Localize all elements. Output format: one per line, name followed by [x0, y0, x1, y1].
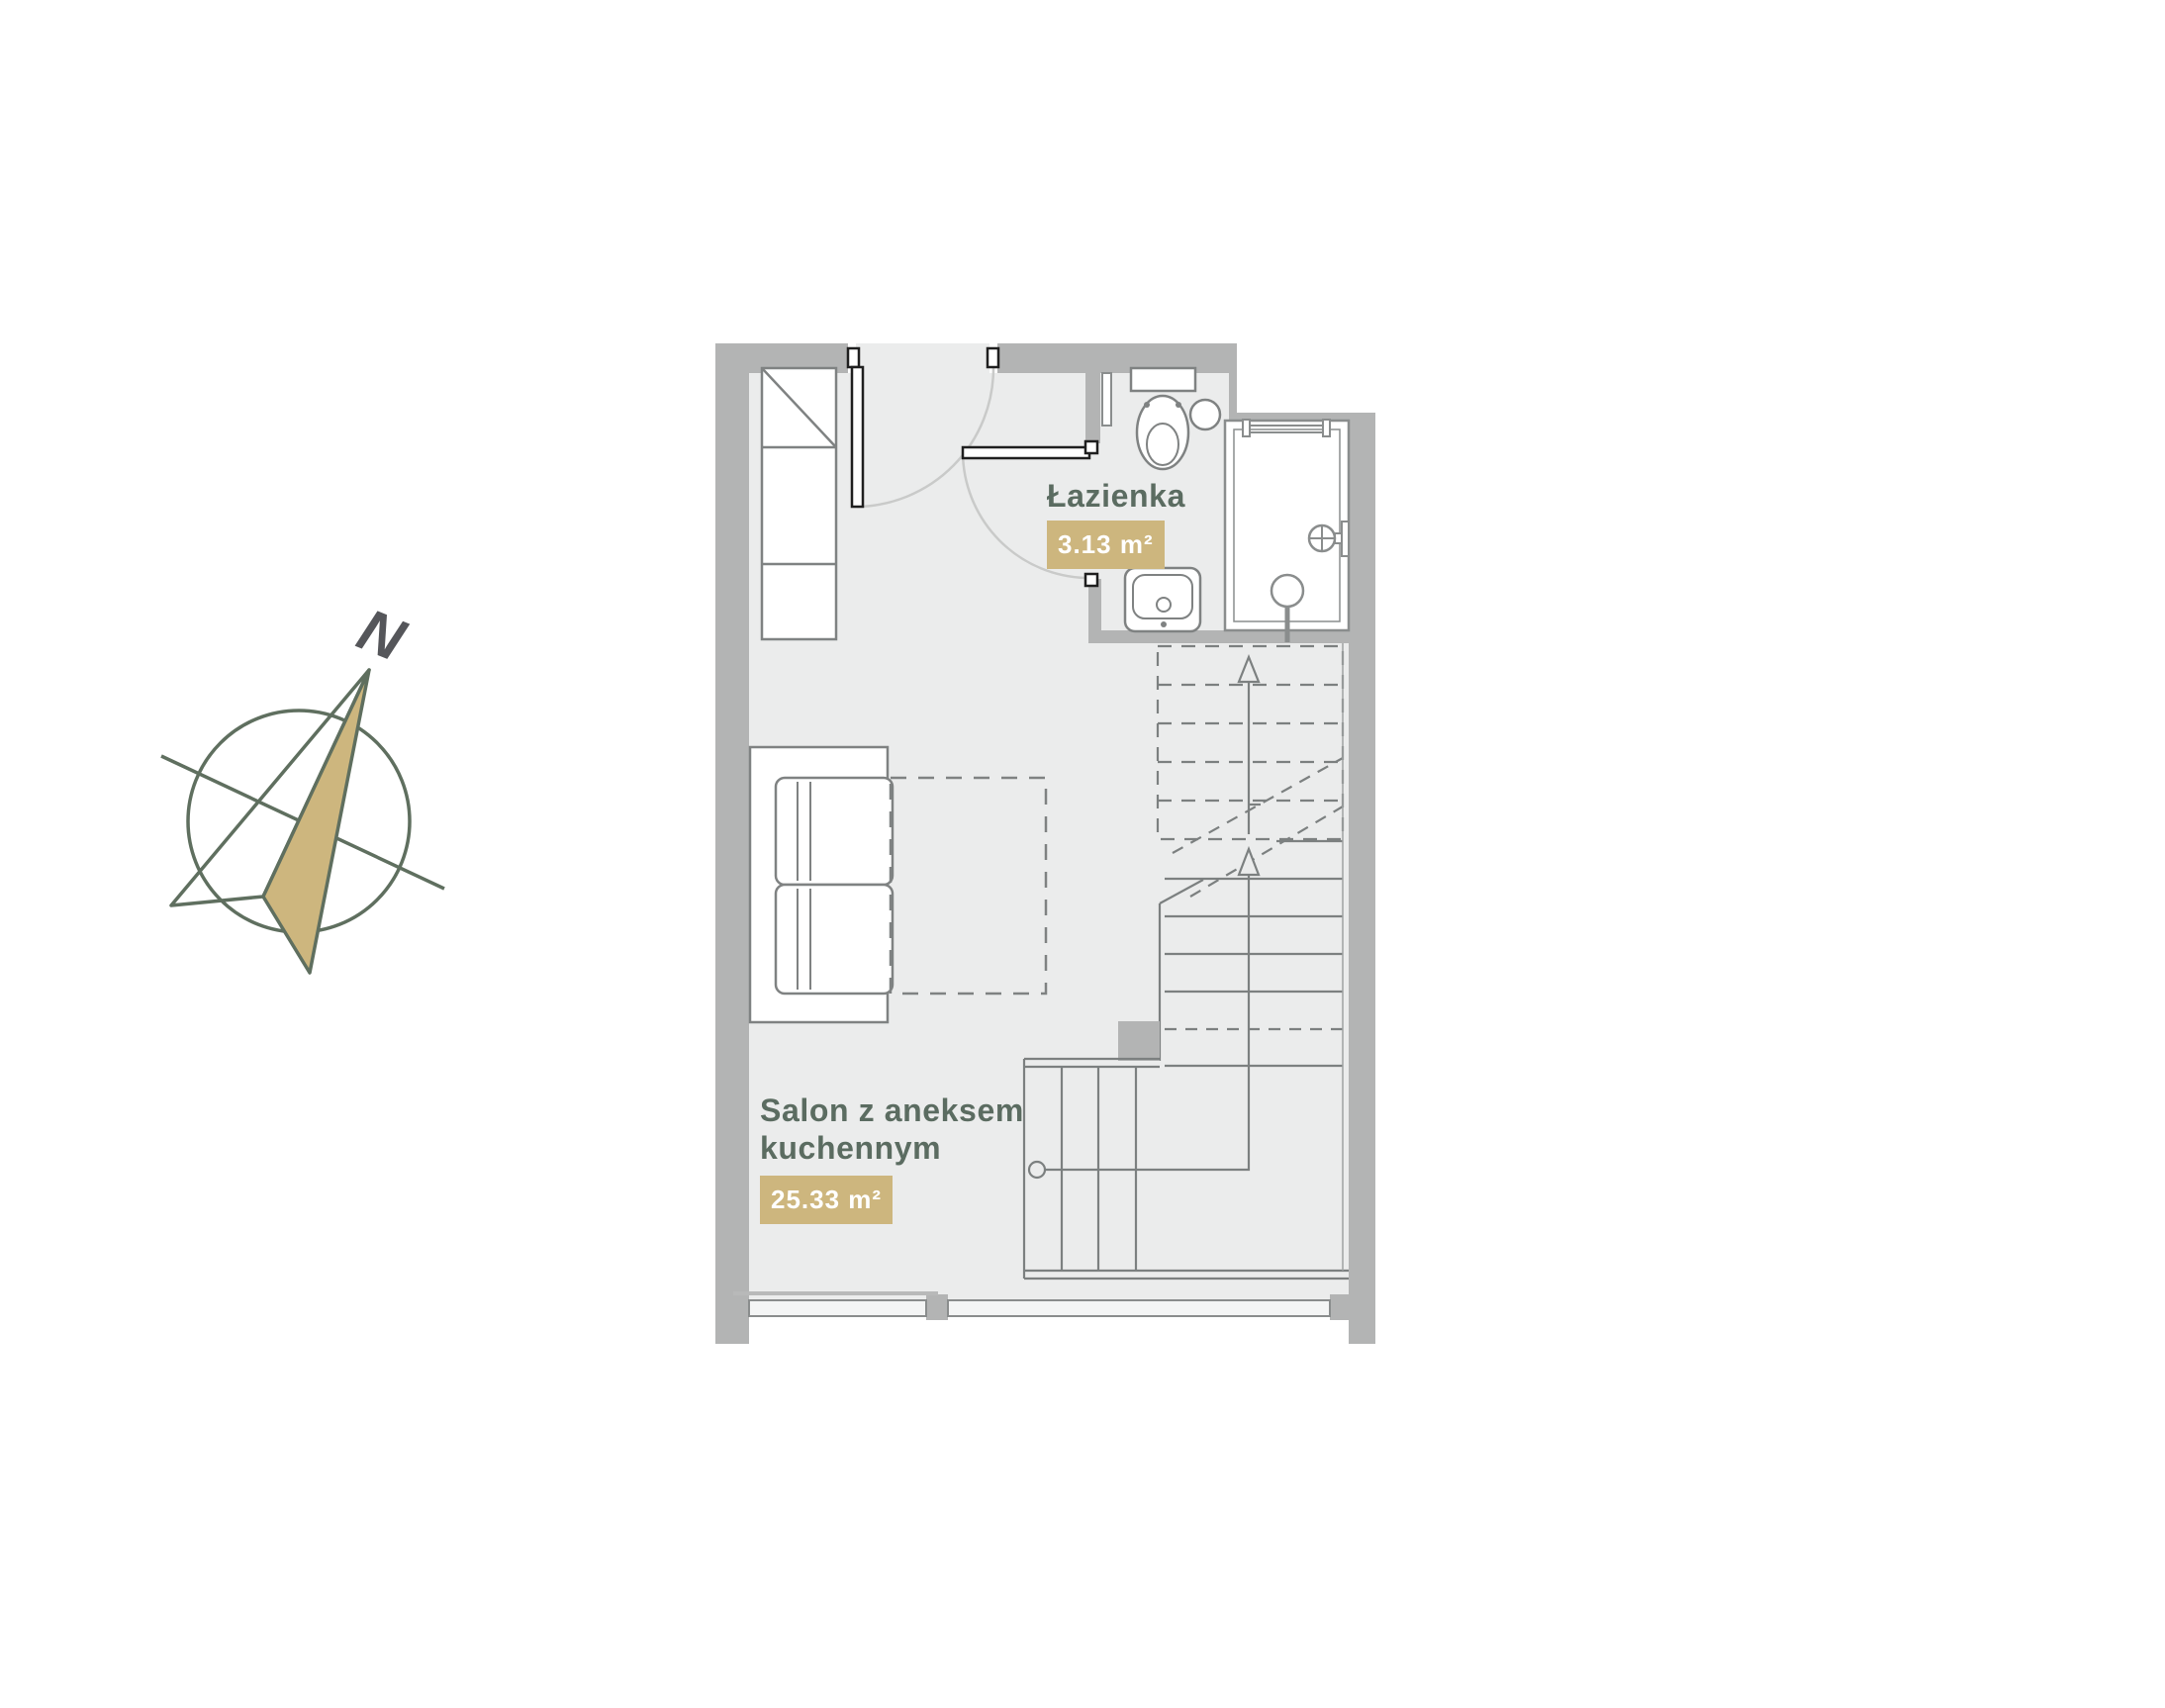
stairs-newel-block	[1118, 1021, 1160, 1061]
window-left	[749, 1300, 926, 1316]
area-badge-salon: 25.33 m²	[760, 1176, 893, 1224]
floor-plan-page: { "compass": { "north_label": "N" }, "ro…	[0, 0, 2165, 1708]
toilet-side-circle	[1190, 400, 1220, 429]
entrance-opening-floor	[856, 343, 989, 375]
room-label-lazienka: Łazienka 3.13 m²	[1047, 477, 1185, 569]
sofa	[750, 747, 893, 1022]
sink	[1125, 568, 1200, 631]
wall-window-right-step	[1330, 1294, 1349, 1320]
wall-bath-stub-upper	[1085, 344, 1100, 443]
entrance-door-jamb-left	[848, 348, 859, 367]
entrance-door-jamb-right	[988, 348, 998, 367]
room-name-lazienka: Łazienka	[1047, 477, 1185, 515]
bathroom-door-stop-lower	[1085, 574, 1097, 586]
wall-right	[1349, 413, 1375, 1344]
wall-top-right	[997, 343, 1237, 373]
room-name-salon-line2: kuchennym	[760, 1129, 1024, 1167]
compass-icon: N	[161, 596, 444, 973]
wall-window-pier	[926, 1294, 948, 1320]
compass-needle-fill	[263, 670, 369, 973]
shower-door-jamb-right	[1323, 420, 1330, 436]
shower-door-jamb-left	[1243, 420, 1250, 436]
wall-left	[715, 343, 749, 1344]
area-badge-lazienka: 3.13 m²	[1047, 521, 1165, 569]
wall-bath-bottom	[1088, 630, 1349, 643]
radiator	[1102, 373, 1111, 426]
floor-plan-svg: N	[0, 0, 2165, 1708]
bathroom-door-stop-upper	[1085, 441, 1097, 453]
room-name-salon-line1: Salon z aneksem	[760, 1091, 1024, 1129]
compass-north-letter: N	[349, 596, 416, 674]
entrance-door-leaf	[852, 367, 863, 507]
wardrobe	[762, 368, 836, 639]
shower	[1225, 420, 1349, 642]
window-sill-line	[733, 1291, 938, 1295]
room-label-salon: Salon z aneksem kuchennym 25.33 m²	[760, 1091, 1024, 1224]
wall-corner-step	[1229, 343, 1237, 423]
window-right	[948, 1300, 1330, 1316]
bathroom-door-leaf	[963, 447, 1089, 458]
